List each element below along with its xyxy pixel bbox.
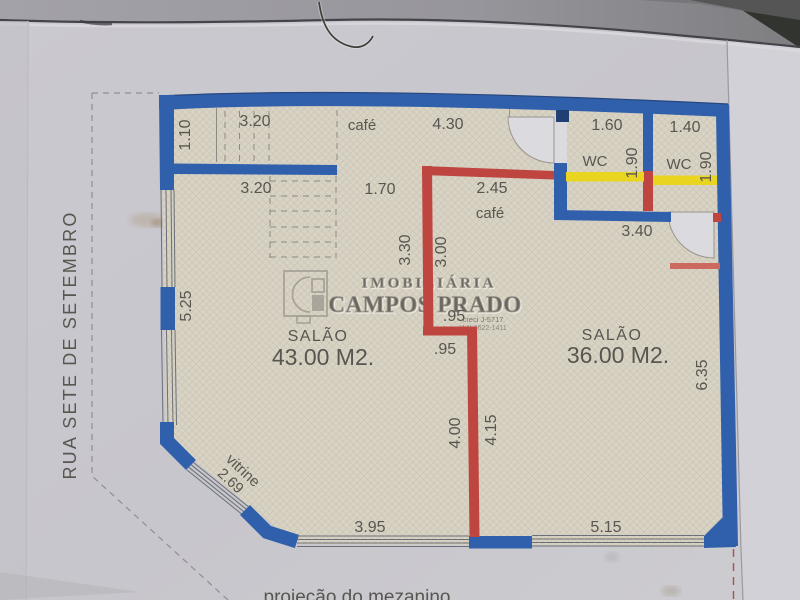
- svg-text:1.90: 1.90: [698, 151, 715, 182]
- svg-text:3.30: 3.30: [397, 234, 414, 265]
- svg-text:café: café: [476, 205, 504, 222]
- svg-text:SALÃO: SALÃO: [288, 325, 349, 345]
- svg-text:3.00: 3.00: [433, 236, 450, 267]
- svg-text:1.60: 1.60: [591, 117, 622, 134]
- svg-text:43.00 M2.: 43.00 M2.: [272, 344, 374, 370]
- svg-text:creci J-5717: creci J-5717: [463, 315, 504, 324]
- svg-text:.95: .95: [434, 341, 456, 358]
- svg-text:2.45: 2.45: [476, 180, 507, 197]
- svg-text:4.15: 4.15: [483, 414, 500, 445]
- svg-text:1.10: 1.10: [177, 119, 194, 150]
- svg-text:6.35: 6.35: [694, 359, 711, 390]
- svg-text:1.70: 1.70: [364, 181, 395, 198]
- svg-text:projeção do mezanino: projeção do mezanino: [264, 587, 451, 600]
- svg-text:.95: .95: [443, 308, 465, 325]
- svg-text:5.25: 5.25: [178, 290, 195, 321]
- svg-text:3.20: 3.20: [239, 113, 270, 130]
- svg-text:4.00: 4.00: [447, 417, 464, 448]
- svg-text:WC: WC: [667, 156, 692, 173]
- svg-text:WC: WC: [583, 153, 608, 170]
- svg-text:3.20: 3.20: [240, 180, 271, 197]
- svg-text:5.15: 5.15: [590, 519, 621, 536]
- svg-text:SALÃO: SALÃO: [582, 324, 643, 344]
- svg-text:RUA SETE DE SETEMBRO: RUA SETE DE SETEMBRO: [60, 210, 80, 479]
- svg-text:3.40: 3.40: [621, 223, 652, 240]
- svg-text:3.95: 3.95: [354, 519, 385, 536]
- svg-text:café: café: [348, 117, 376, 134]
- svg-text:1.90: 1.90: [624, 147, 641, 178]
- svg-text:36.00 M2.: 36.00 M2.: [567, 342, 669, 368]
- svg-text:4.30: 4.30: [432, 116, 463, 133]
- svg-text:1.40: 1.40: [669, 119, 700, 136]
